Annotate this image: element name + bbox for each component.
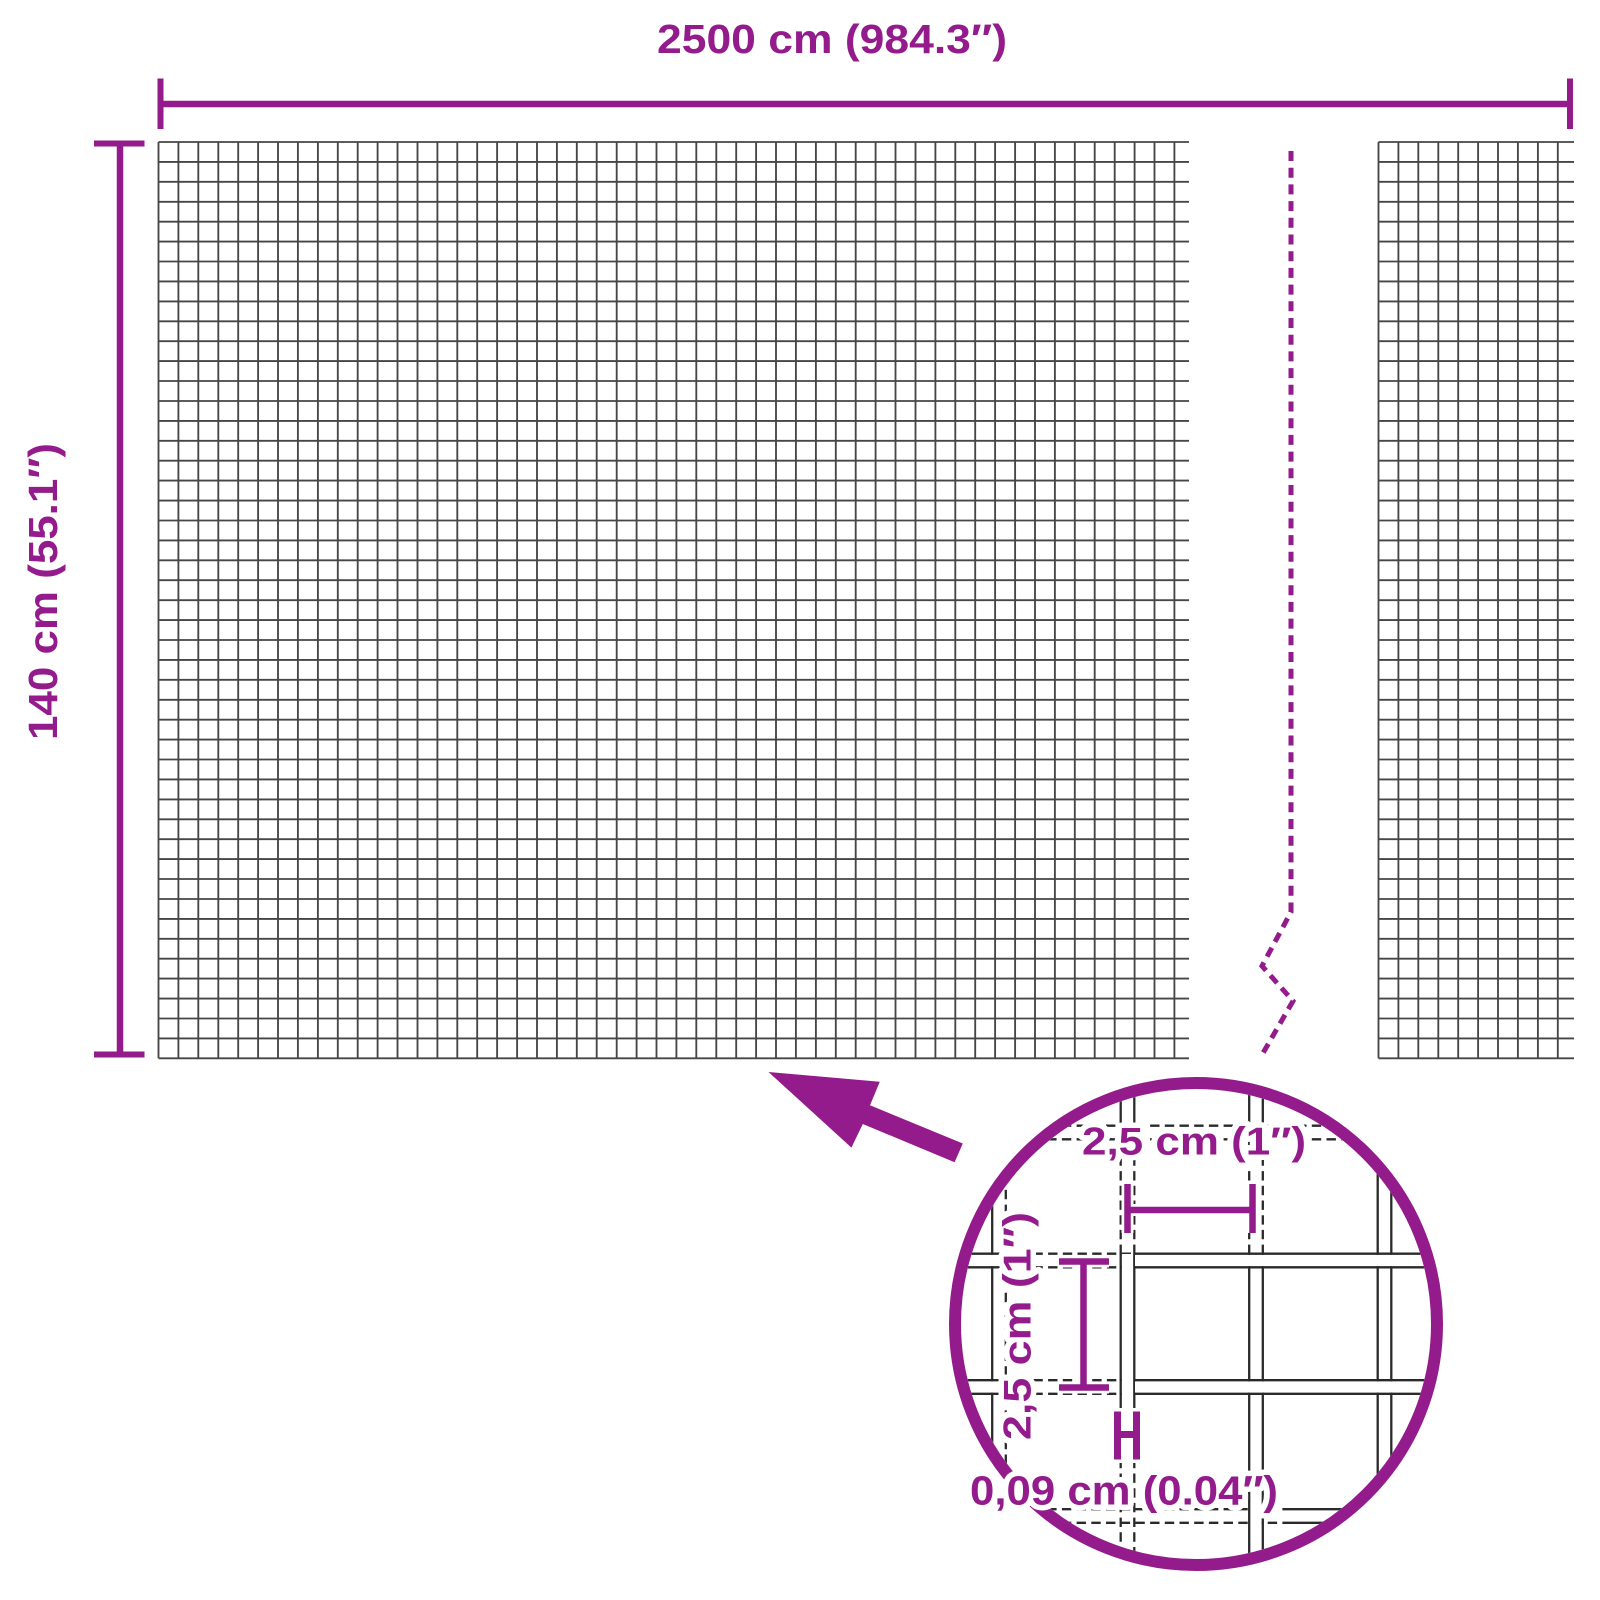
svg-text:0,09 cm (0.04″): 0,09 cm (0.04″) bbox=[970, 1468, 1278, 1514]
svg-text:2,5 cm (1″): 2,5 cm (1″) bbox=[1082, 1121, 1306, 1164]
svg-text:2,5 cm (1″): 2,5 cm (1″) bbox=[997, 1212, 1040, 1440]
svg-text:140 cm (55.1″): 140 cm (55.1″) bbox=[20, 443, 66, 740]
svg-text:2500 cm (984.3″): 2500 cm (984.3″) bbox=[657, 16, 1007, 62]
